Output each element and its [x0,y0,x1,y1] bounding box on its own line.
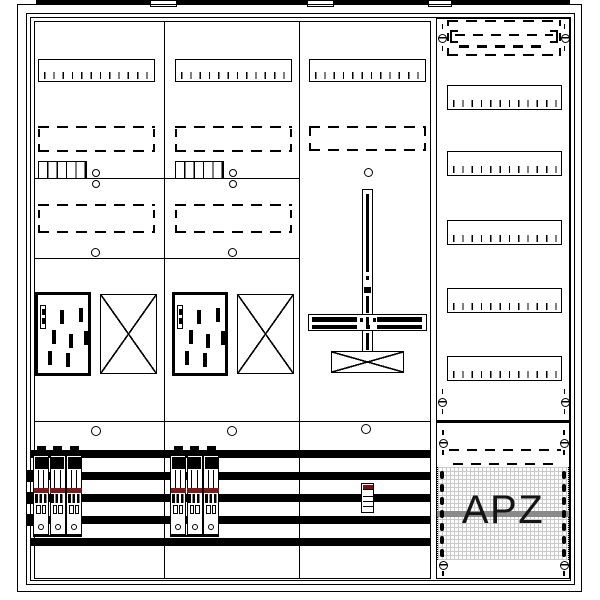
stitch-mark [440,471,444,479]
tick-mark [442,409,444,414]
screw-icon [439,561,448,570]
breaker-label [36,505,41,514]
screw-icon [561,34,570,43]
breaker-wire [60,470,61,489]
reserved-area-dashed [309,126,426,151]
rail-ticks [453,166,557,173]
slot-mark [197,310,201,324]
rail-ticks [453,371,557,378]
busbar-line [366,296,370,313]
din-rail [309,59,426,82]
busbar-line [364,287,371,294]
breaker-clamp [35,494,48,503]
breaker-wire [76,470,77,489]
breaker-wire [71,470,72,489]
breaker-label [190,505,195,514]
stitch-mark [562,497,566,505]
stitch-mark [440,484,444,492]
mounting-hole [228,248,237,257]
breaker-red-stripe [187,488,202,493]
tick-mark [563,571,565,576]
bracket-mark [450,30,458,43]
breaker-wire [175,470,176,489]
dashed-line [449,449,561,452]
breaker-red-stripe [204,488,219,493]
breaker-wire [180,470,181,489]
breaker-wire [54,470,55,489]
reserved-area-dashed [38,204,155,233]
tick-mark [564,409,566,414]
sls-breaker-group [33,446,82,537]
slot-mark [42,318,45,324]
breaker-terminal [205,457,218,469]
busbar [30,516,431,524]
rail-ticks [44,72,150,79]
busbar-line [366,194,370,272]
apz-label: APZ [447,491,559,531]
breaker-wire [38,470,39,489]
slot-mark [48,351,52,365]
breaker-red-stripe [50,488,65,493]
rail-ticks [453,303,557,310]
breaker-red-stripe [67,488,82,493]
din-rail [447,85,562,110]
slot-mark [179,318,182,324]
breaker-red-stripe [171,488,186,493]
slot-mark [66,353,70,367]
breaker-wire [43,470,44,489]
stitch-mark [562,536,566,544]
breaker-group-base [33,535,82,538]
breaker-test-hole [38,524,44,530]
device-line [363,501,373,502]
tick-mark [564,24,566,29]
stitch-mark [562,471,566,479]
breaker-terminal [51,457,64,469]
dashed-line [453,463,557,466]
busbar [30,450,431,458]
dashed-line [455,34,553,37]
dashed-line [459,45,549,48]
breaker-label [69,505,74,514]
reserved-area-dashed [447,20,561,56]
slot-mark [179,309,182,315]
breaker-clamp [68,494,81,503]
slot-mark [216,308,220,322]
cross-bar [312,325,357,330]
right-field-divider [436,420,570,423]
breaker-clamp [188,494,201,503]
mounting-hole [229,180,237,188]
breaker-clamp [205,494,218,503]
cross-bar [377,317,422,322]
screw-icon [438,34,447,43]
breaker-label [42,505,47,514]
terminal-block [175,161,224,179]
stitch-mark [440,523,444,531]
blanked-field [331,351,404,373]
tick-mark [563,553,565,557]
din-rail [447,151,562,176]
terminal-block [38,161,87,179]
stitch-mark [440,510,444,518]
busbar-line [366,333,370,350]
mounting-hole [227,426,237,436]
tick-mark [442,571,444,576]
stitch-mark [440,497,444,505]
slot-mark [206,334,210,348]
rail-ticks [181,72,287,79]
busbar-line [366,276,370,280]
breaker-label [179,505,184,514]
din-rail [447,220,562,245]
breaker-wire [191,470,192,489]
breaker-label [212,505,217,514]
din-rail [175,59,292,82]
meter-cabinet-drawing: APZ [0,0,600,600]
busbar [30,538,431,546]
slot-mark [79,308,83,322]
blanked-field [237,294,294,374]
cross-bar [312,317,357,322]
breaker-clamp [172,494,185,503]
breaker-label [53,505,58,514]
screw-icon [439,439,448,448]
sls-breaker-group [170,446,219,537]
breaker-terminal [188,457,201,469]
slot-mark [189,330,193,344]
tick-mark [442,430,444,435]
breaker-test-hole [192,524,198,530]
slot-mark [60,310,64,324]
rail-ticks [315,72,421,79]
tick-mark [564,46,566,51]
mounting-hole [92,169,100,177]
breaker-label [195,505,200,514]
mounting-hole [91,248,100,257]
slot-mark [52,330,56,344]
tick-mark [442,24,444,29]
slot-mark [42,309,45,315]
slot-mark [203,353,207,367]
tick-mark [442,450,444,455]
breaker-terminal [35,457,48,469]
rail-ticks [453,100,557,107]
busbar [30,472,431,480]
slot-mark [69,334,73,348]
mounting-hole [229,169,237,177]
breaker-test-hole [71,524,77,530]
reserved-area-dashed [38,126,155,152]
tick-mark [563,430,565,435]
tick-mark [564,389,566,394]
breaker-wire [208,470,209,489]
breaker-wire [213,470,214,489]
row-divider [34,258,300,260]
mounting-hole [364,168,373,177]
breaker-test-hole [175,524,181,530]
bracket-mark [550,30,558,43]
tick-mark [442,389,444,394]
cross-mark [373,318,376,322]
cross-mark [360,318,363,322]
stitch-mark [440,536,444,544]
cross-bar [377,325,422,330]
breaker-terminal [172,457,185,469]
device-line [363,506,373,507]
screw-icon [560,561,569,570]
reserved-area-dashed [175,126,292,152]
tick-mark [442,46,444,51]
breaker-wire [197,470,198,489]
stitch-mark [562,523,566,531]
rail-ticks [453,235,557,242]
slot-mark [221,331,225,345]
breaker-test-hole [55,524,61,530]
device-line [363,496,373,497]
reserved-area-dashed [175,204,292,233]
blanked-field [100,294,157,374]
mounting-hole [92,180,100,188]
screw-icon [438,398,447,407]
breaker-label [206,505,211,514]
breaker-test-hole [208,524,214,530]
mounting-hole [91,426,101,436]
breaker-clamp [51,494,64,503]
stitch-mark [562,510,566,518]
breaker-red-stripe [34,488,49,493]
breaker-group-base [170,535,219,538]
stitch-mark [562,484,566,492]
slot-mark [185,351,189,365]
breaker-label [75,505,80,514]
tick-mark [442,553,444,557]
din-rail [38,59,155,82]
breaker-label [173,505,178,514]
device-cap [363,485,373,491]
breaker-label [58,505,63,514]
row-divider [34,421,431,423]
breaker-terminal [68,457,81,469]
din-rail [447,288,562,313]
slot-mark [84,331,88,345]
mounting-hole [361,424,371,434]
cross-mark [366,325,370,329]
screw-icon [561,398,570,407]
din-rail [447,356,562,381]
tick-mark [563,450,565,455]
screw-icon [560,439,569,448]
